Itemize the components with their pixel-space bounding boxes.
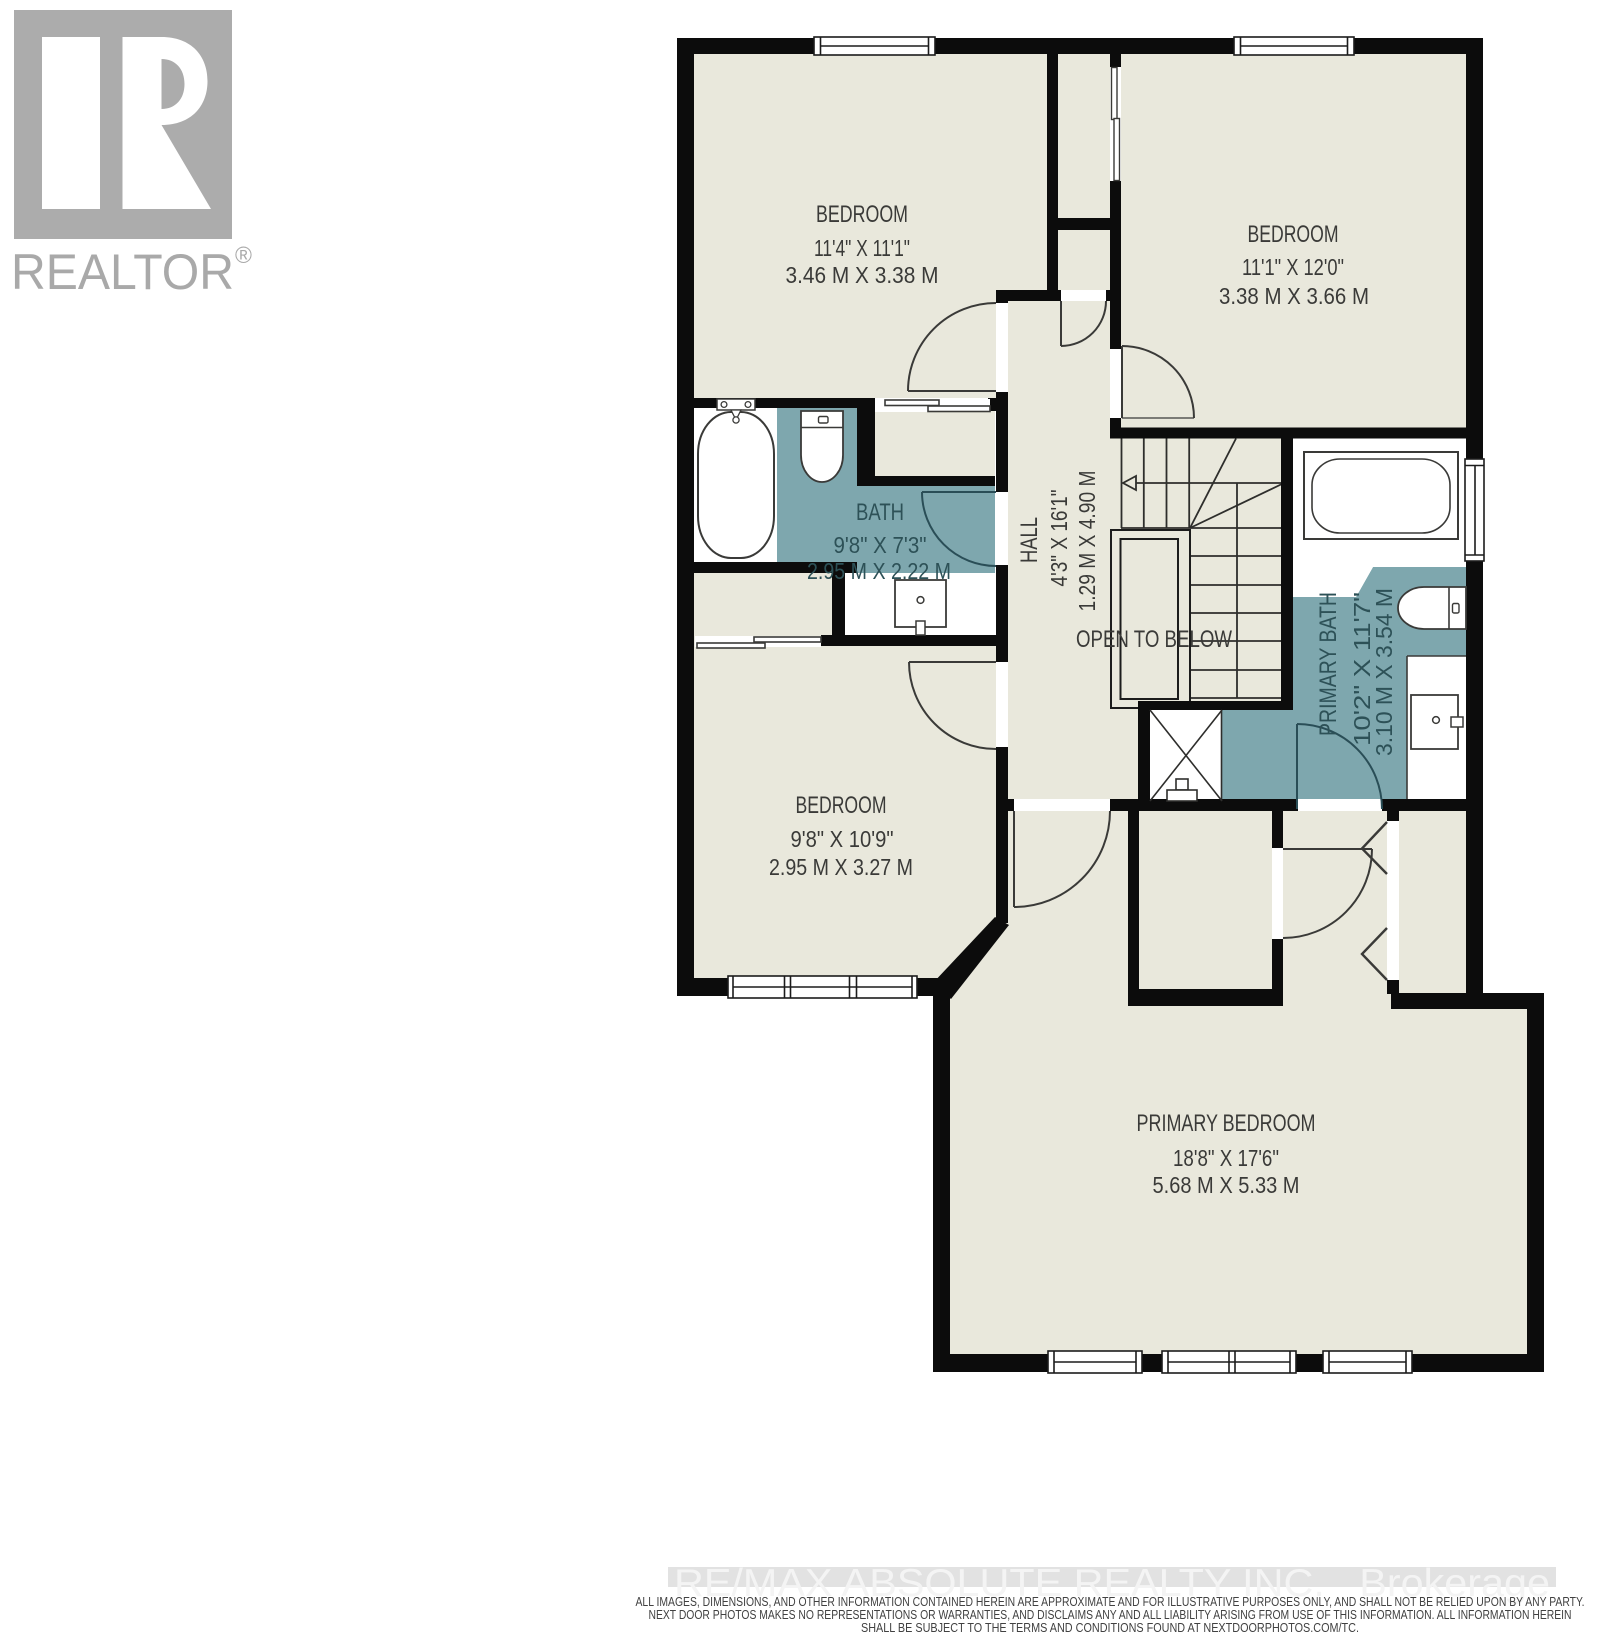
svg-text:BATH: BATH (856, 499, 904, 526)
svg-text:HALL: HALL (1016, 517, 1043, 563)
svg-text:®: ® (235, 242, 252, 268)
svg-text:18'8" X 17'6": 18'8" X 17'6" (1173, 1145, 1279, 1171)
svg-text:9'8" X 7'3": 9'8" X 7'3" (834, 532, 927, 558)
svg-text:3.38 M X 3.66 M: 3.38 M X 3.66 M (1219, 283, 1369, 309)
svg-text:REALTOR: REALTOR (11, 244, 234, 300)
svg-text:BEDROOM: BEDROOM (1248, 221, 1339, 248)
svg-text:11'1" X 12'0": 11'1" X 12'0" (1242, 254, 1344, 280)
svg-text:ALL IMAGES, DIMENSIONS, AND OT: ALL IMAGES, DIMENSIONS, AND OTHER INFORM… (636, 1595, 1585, 1609)
svg-text:NEXT DOOR PHOTOS MAKES NO REPR: NEXT DOOR PHOTOS MAKES NO REPRESENTATION… (649, 1608, 1572, 1622)
svg-text:9'8" X 10'9": 9'8" X 10'9" (791, 826, 894, 852)
svg-text:BEDROOM: BEDROOM (796, 792, 887, 819)
svg-text:3.10 M X 3.54 M: 3.10 M X 3.54 M (1371, 588, 1397, 756)
svg-text:2.95 M X 3.27 M: 2.95 M X 3.27 M (769, 854, 913, 880)
svg-text:SHALL BE SUBJECT TO THE TERMS: SHALL BE SUBJECT TO THE TERMS AND CONDIT… (861, 1621, 1359, 1635)
svg-text:2.95 M X 2.22 M: 2.95 M X 2.22 M (807, 558, 951, 584)
svg-text:5.68 M X 5.33 M: 5.68 M X 5.33 M (1153, 1172, 1300, 1198)
svg-text:OPEN TO BELOW: OPEN TO BELOW (1076, 626, 1232, 653)
svg-text:PRIMARY BATH: PRIMARY BATH (1315, 592, 1342, 736)
svg-text:PRIMARY BEDROOM: PRIMARY BEDROOM (1137, 1110, 1316, 1137)
svg-text:BEDROOM: BEDROOM (816, 201, 908, 228)
svg-text:11'4" X 11'1": 11'4" X 11'1" (814, 235, 910, 261)
svg-text:1.29 M X 4.90 M: 1.29 M X 4.90 M (1074, 471, 1100, 612)
svg-text:3.46 M X 3.38 M: 3.46 M X 3.38 M (786, 262, 939, 288)
svg-text:4'3" X 16'1": 4'3" X 16'1" (1046, 490, 1072, 587)
